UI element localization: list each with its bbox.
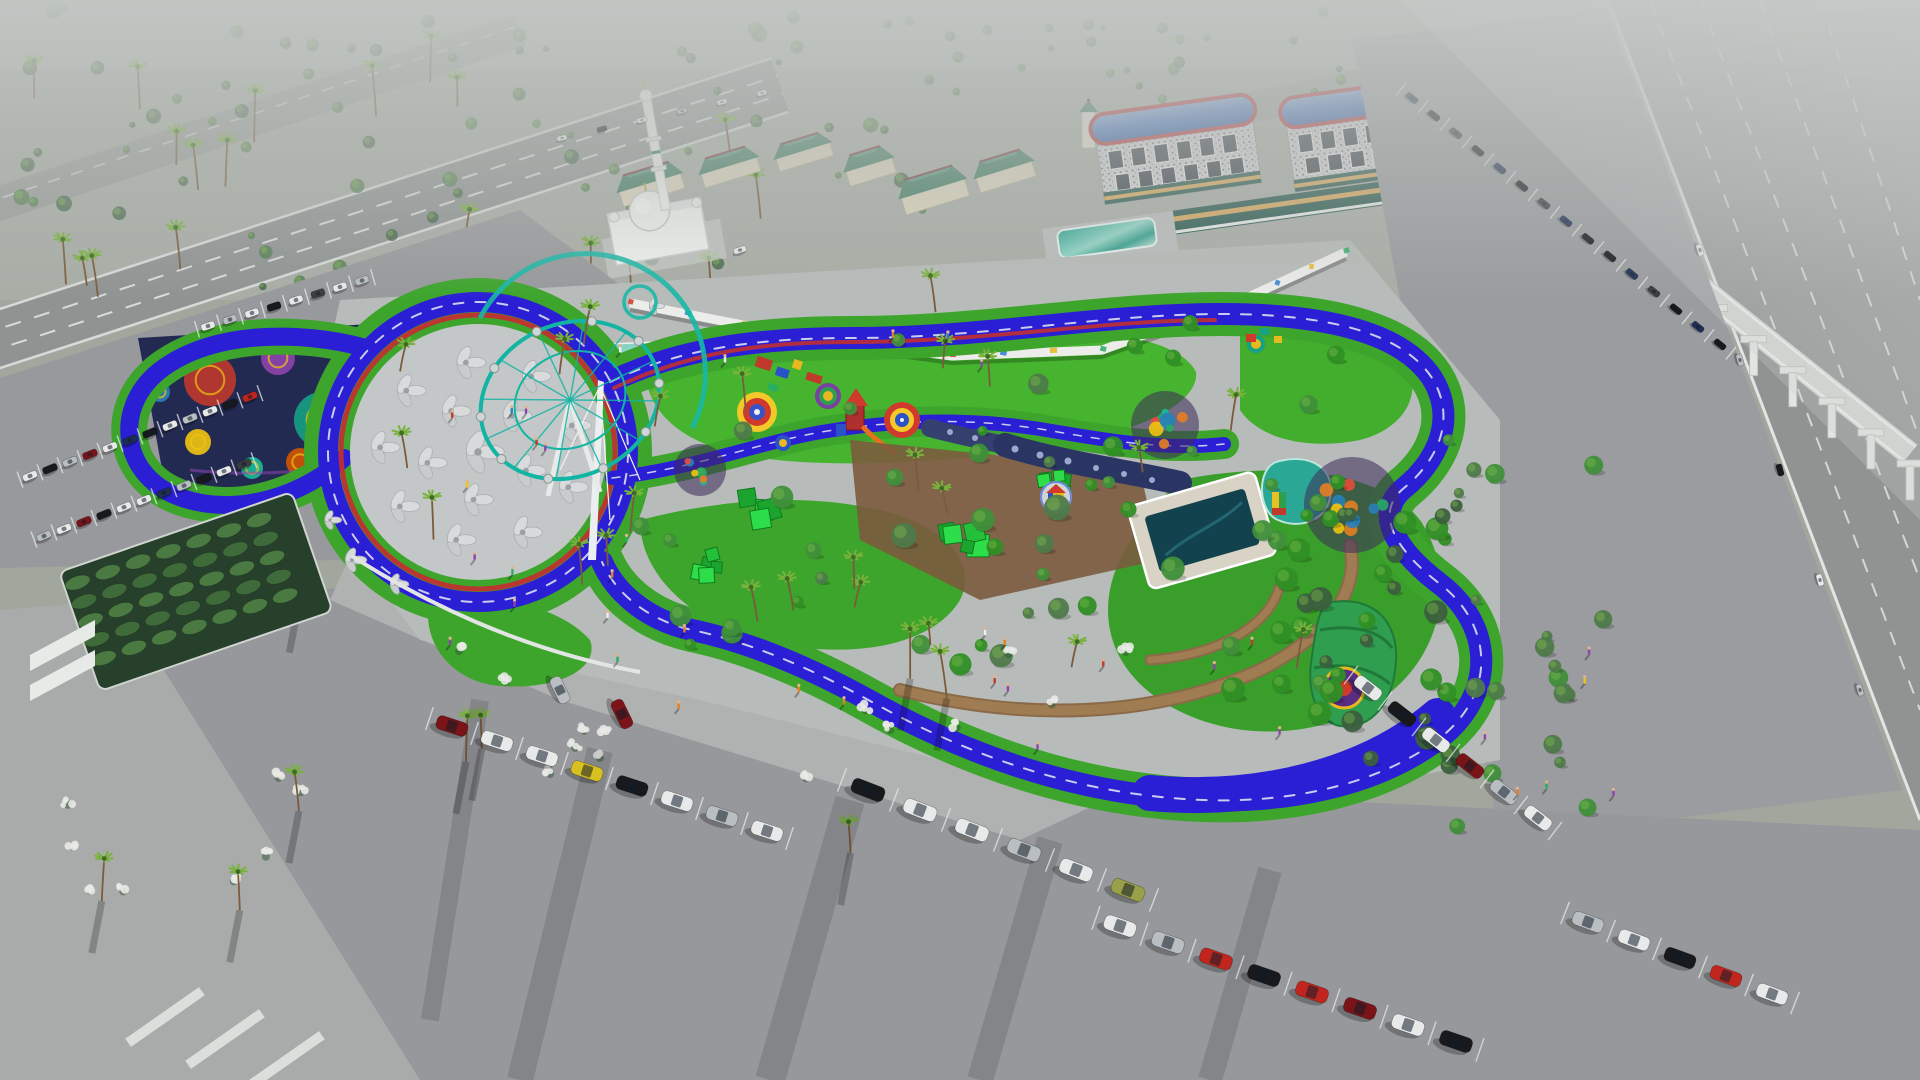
target-circles <box>775 435 791 451</box>
aerial-park-render <box>0 0 1920 1080</box>
target-circles <box>815 383 841 409</box>
ne-play-unit <box>1246 334 1256 342</box>
scene-canvas <box>0 0 1920 1080</box>
target-circles <box>884 402 920 438</box>
dot-mosaic <box>674 444 726 496</box>
